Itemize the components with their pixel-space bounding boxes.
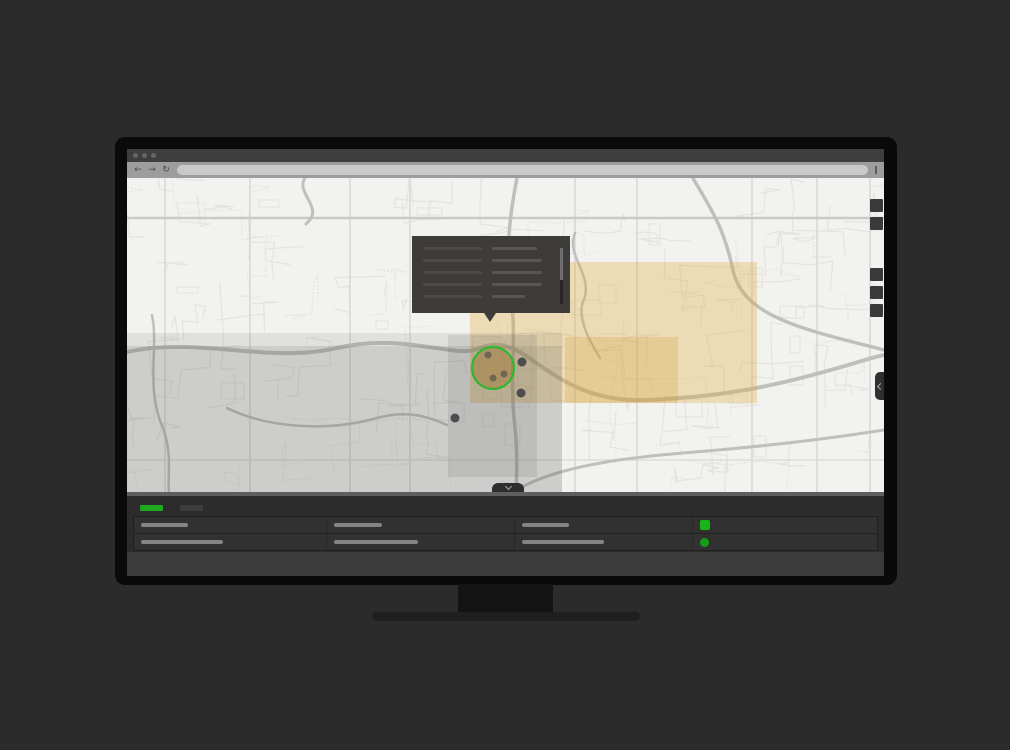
- popup-left-column: [423, 247, 482, 298]
- table-cell-status: [693, 517, 877, 533]
- table-cell: [134, 517, 327, 533]
- browser-menu-icon[interactable]: [875, 166, 877, 174]
- monitor-stand-base: [372, 612, 640, 621]
- popup-text-line: [423, 259, 482, 262]
- popup-text-line: [423, 247, 482, 250]
- map-marker[interactable]: [517, 389, 526, 398]
- status-indicator-square: [700, 520, 710, 530]
- back-icon[interactable]: ←: [132, 162, 144, 178]
- map-control-button[interactable]: [870, 286, 883, 299]
- popup-scrollbar-thumb[interactable]: [560, 280, 563, 304]
- map-graphics: [127, 178, 884, 492]
- map-control-button[interactable]: [870, 268, 883, 281]
- panel-tab-bar: [140, 505, 203, 511]
- popup-text-line: [423, 295, 482, 298]
- browser-window: ← → ↻: [127, 149, 884, 576]
- popup-pointer: [484, 313, 496, 322]
- chevron-down-icon: [504, 483, 511, 490]
- map-control-button[interactable]: [870, 199, 883, 212]
- zone-overlay-tan-inner: [565, 337, 678, 403]
- table-cell: [515, 534, 693, 550]
- popup-scrollbar[interactable]: [560, 248, 563, 304]
- cell-text-placeholder: [334, 523, 382, 527]
- window-close-button[interactable]: [133, 153, 138, 158]
- cell-text-placeholder: [522, 523, 569, 527]
- table-cell: [515, 517, 693, 533]
- status-indicator-circle: [700, 538, 709, 547]
- bottom-panel-toggle[interactable]: [492, 483, 524, 492]
- popup-text-line: [492, 247, 537, 250]
- side-panel-toggle[interactable]: [875, 372, 884, 400]
- popup-text-line: [492, 283, 542, 286]
- cell-text-placeholder: [141, 523, 188, 527]
- cell-text-placeholder: [334, 540, 418, 544]
- monitor-stand-neck: [458, 584, 553, 613]
- results-panel: [127, 492, 884, 552]
- cell-text-placeholder: [522, 540, 604, 544]
- map-marker[interactable]: [518, 358, 527, 367]
- table-cell: [327, 534, 515, 550]
- cluster-point: [485, 352, 492, 359]
- table-cell: [134, 534, 327, 550]
- screen-chin: [127, 552, 884, 576]
- popup-text-line: [423, 271, 482, 274]
- window-maximize-button[interactable]: [151, 153, 156, 158]
- popup-text-line: [492, 259, 542, 262]
- cluster-point: [490, 375, 497, 382]
- refresh-icon[interactable]: ↻: [160, 162, 172, 178]
- popup-text-line: [423, 283, 482, 286]
- panel-tab-inactive[interactable]: [180, 505, 203, 511]
- panel-tab-active[interactable]: [140, 505, 163, 511]
- cluster-marker[interactable]: [472, 347, 514, 389]
- forward-icon[interactable]: →: [146, 162, 158, 178]
- map-marker[interactable]: [451, 414, 460, 423]
- browser-toolbar: ← → ↻: [127, 162, 884, 178]
- window-minimize-button[interactable]: [142, 153, 147, 158]
- map-control-button[interactable]: [870, 217, 883, 230]
- monitor-bezel: ← → ↻: [115, 137, 897, 585]
- table-row[interactable]: [134, 517, 877, 533]
- table-cell: [327, 517, 515, 533]
- table-cell-status: [693, 534, 877, 550]
- map-popup: [412, 236, 570, 313]
- browser-titlebar: [127, 149, 884, 162]
- map-control-button[interactable]: [870, 304, 883, 317]
- table-row[interactable]: [134, 533, 877, 550]
- popup-text-line: [492, 295, 525, 298]
- cell-text-placeholder: [141, 540, 223, 544]
- chevron-left-icon: [877, 382, 884, 389]
- url-bar[interactable]: [177, 165, 868, 175]
- results-table: [133, 516, 878, 551]
- popup-right-column: [492, 247, 542, 298]
- map-canvas[interactable]: [127, 178, 884, 492]
- popup-text-line: [492, 271, 542, 274]
- cluster-point: [501, 371, 508, 378]
